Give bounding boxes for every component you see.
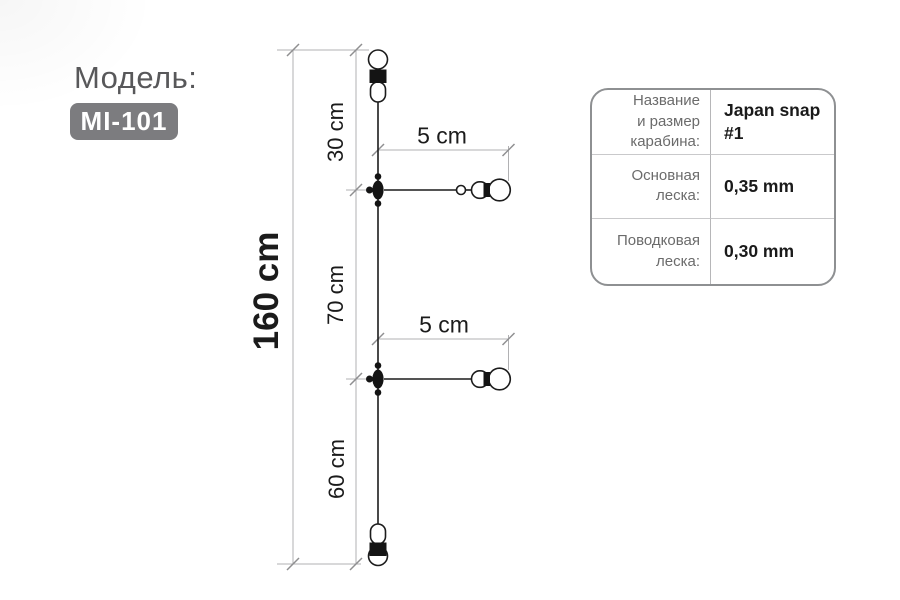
spec-table: Название и размер карабина: Japan snap #… — [590, 88, 836, 286]
model-code-badge: MI-101 — [70, 103, 178, 140]
barrel-swivel-bottom-icon — [369, 524, 388, 566]
bead-stop-branch-1 — [366, 173, 384, 207]
spec-row-main-value: 0,35 mm — [711, 155, 834, 220]
snap-swivel-branch-1-icon — [457, 179, 511, 201]
dimension-lines — [277, 50, 509, 564]
segment-label-60cm: 60 cm — [324, 439, 350, 499]
total-length-label: 160 cm — [247, 232, 287, 351]
branch-label-5cm-2: 5 cm — [419, 312, 469, 339]
barrel-swivel-top-icon — [369, 50, 388, 102]
spec-row-main-label: Основная леска: — [592, 155, 711, 220]
dimension-ticks — [287, 44, 515, 570]
spec-row-leader-label: Поводковая леска: — [592, 219, 711, 284]
page: Модель: MI-101 160 cm 30 cm 70 cm 60 cm … — [0, 0, 900, 600]
spec-row-leader-value: 0,30 mm — [711, 219, 834, 284]
segment-label-70cm: 70 cm — [323, 265, 349, 325]
model-label: Модель: — [74, 60, 197, 96]
snap-swivel-branch-2-icon — [472, 368, 511, 390]
spec-row-snap-label: Название и размер карабина: — [592, 90, 711, 155]
branch-label-5cm-1: 5 cm — [417, 123, 467, 150]
bead-stop-branch-2 — [366, 362, 384, 396]
spec-row-snap-value: Japan snap #1 — [711, 90, 834, 155]
model-code: MI-101 — [81, 106, 168, 137]
segment-label-30cm: 30 cm — [323, 102, 349, 162]
